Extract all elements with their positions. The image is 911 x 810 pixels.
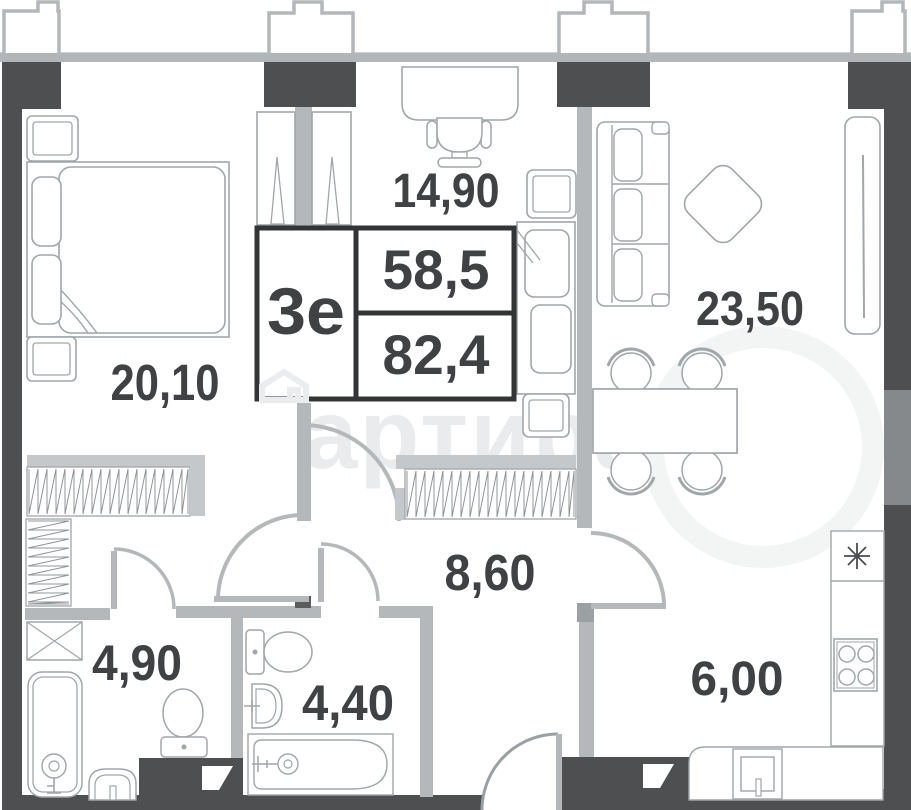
svg-text:4,40: 4,40 [302, 675, 394, 731]
svg-text:14,90: 14,90 [393, 165, 500, 218]
svg-text:58,5: 58,5 [383, 238, 490, 301]
svg-text:4,90: 4,90 [92, 635, 182, 691]
svg-text:3е: 3е [267, 274, 345, 348]
svg-text:20,10: 20,10 [111, 354, 220, 411]
svg-text:23,50: 23,50 [696, 283, 804, 336]
svg-text:6,00: 6,00 [691, 653, 784, 706]
svg-text:82,4: 82,4 [383, 323, 490, 386]
svg-text:8,60: 8,60 [445, 544, 536, 601]
